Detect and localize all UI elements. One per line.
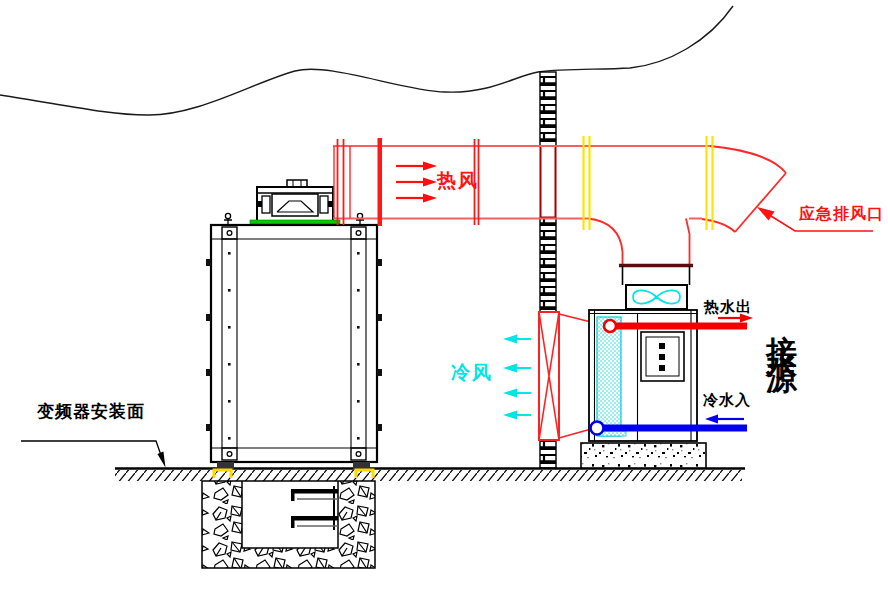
cold-water-in-label: 冷水入 xyxy=(703,392,751,407)
lifting-handle xyxy=(287,180,307,187)
inverter-mount-surface-label: 变频器安装面 xyxy=(37,403,145,420)
hot-air-supply-duct xyxy=(333,138,786,265)
cold-air-flow-arrows xyxy=(503,335,531,420)
fan-section xyxy=(626,285,687,309)
flex-connector-x-brace xyxy=(539,312,591,440)
coil-section xyxy=(597,317,621,436)
top-outlet-box xyxy=(257,187,333,222)
hvac-installation-diagram: 热风 冷风 应急排风口 热水出 冷水入 接水源 变频器安装面 xyxy=(0,0,888,593)
gasket-strip xyxy=(250,220,340,224)
cabinet-frame xyxy=(211,225,377,462)
hot-air-flow-arrows xyxy=(396,162,437,203)
inverter-surface-leader xyxy=(21,441,166,468)
emergency-exhaust-elbow xyxy=(702,146,786,232)
concrete-pad xyxy=(581,443,706,468)
hot-air-label: 热风 xyxy=(437,171,479,190)
leader-arrowhead xyxy=(757,207,775,221)
foundation-pit xyxy=(202,481,375,568)
emergency-exhaust-label: 应急排风口 xyxy=(799,206,884,222)
heat-recovery-unit xyxy=(581,266,706,469)
hot-water-out-label: 热水出 xyxy=(704,299,752,314)
wall-duct-penetration xyxy=(540,146,556,218)
anchor-bolts xyxy=(291,486,338,530)
terrain-break-line xyxy=(0,6,733,115)
cold-air-label: 冷风 xyxy=(451,363,493,382)
drawing-canvas xyxy=(0,0,888,593)
leader-arrowhead xyxy=(157,452,165,468)
control-panel-glyphs xyxy=(659,343,665,371)
air-handling-unit xyxy=(206,180,382,478)
ground-line xyxy=(115,469,745,482)
control-panel xyxy=(641,332,684,381)
water-source-label: 接水源 xyxy=(766,310,797,352)
duct-collar xyxy=(619,266,693,286)
flange-markers-yellow xyxy=(584,136,713,230)
cold-water-arrow xyxy=(705,415,718,424)
